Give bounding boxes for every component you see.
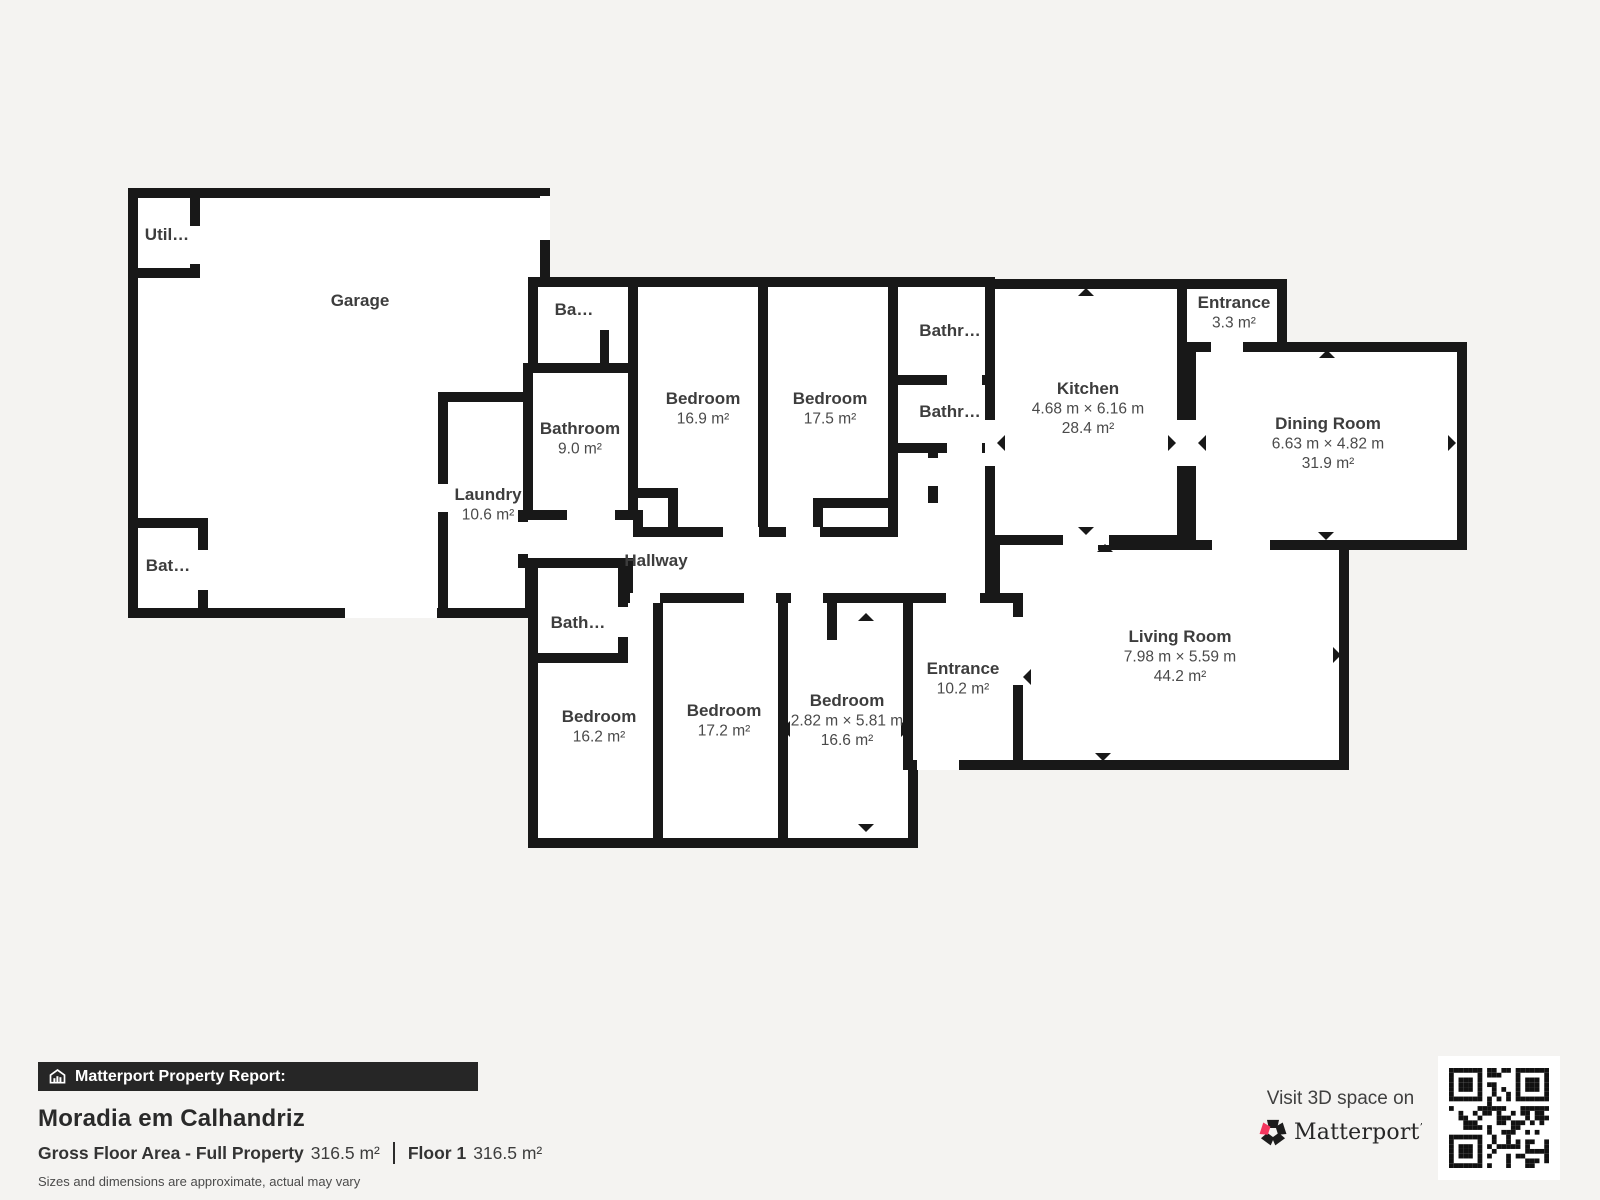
visit-text: Visit 3D space on: [1248, 1088, 1433, 1110]
house-report-icon: [49, 1069, 66, 1084]
gfa-label: Gross Floor Area - Full Property: [38, 1143, 304, 1164]
floor-value: 316.5 m²: [473, 1143, 542, 1164]
room-label-garage: Garage: [331, 291, 390, 310]
matterport-brand: Matterport’: [1248, 1117, 1433, 1147]
disclaimer-text: Sizes and dimensions are approximate, ac…: [38, 1174, 558, 1189]
floor-plan: GarageUtil…Bat…Laundry10.6 m²Ba…Bathroom…: [0, 0, 1600, 1200]
gfa-value: 316.5 m²: [311, 1143, 380, 1164]
room-label-bathroom-lower: Bathr…: [919, 402, 980, 421]
summary-divider: [393, 1142, 395, 1164]
qr-code: [1438, 1056, 1560, 1180]
report-footer: Matterport Property Report: Moradia em C…: [38, 1062, 558, 1189]
room-label-bath-hall: Bath…: [551, 613, 606, 632]
matterport-wordmark: Matterport’: [1294, 1120, 1423, 1145]
floorplan-page: GarageUtil…Bat…Laundry10.6 m²Ba…Bathroom…: [0, 0, 1600, 1200]
room-shape-bath-hall: [533, 563, 623, 658]
trademark-mark: ’: [1420, 1122, 1423, 1133]
report-bar: Matterport Property Report:: [38, 1062, 478, 1091]
room-shape-laundry: [443, 397, 530, 613]
room-label-ba-room: Ba…: [555, 300, 594, 319]
property-title: Moradia em Calhandriz: [38, 1105, 558, 1133]
visit-3d-cta: Visit 3D space on Matterport’: [1248, 1088, 1433, 1147]
room-label-bathroom-upper: Bathr…: [919, 321, 980, 340]
matterport-logo-icon: [1258, 1117, 1288, 1147]
room-label-utility: Util…: [145, 225, 189, 244]
room-label-hallway: Hallway: [624, 551, 688, 570]
room-shape-bedroom-172: [658, 598, 783, 843]
area-summary: Gross Floor Area - Full Property 316.5 m…: [38, 1142, 558, 1164]
room-label-bathroom-garage: Bat…: [146, 556, 190, 575]
room-shape-ba-room: [533, 282, 643, 368]
floor-label: Floor 1: [408, 1143, 466, 1164]
report-bar-label: Matterport Property Report:: [75, 1068, 286, 1086]
